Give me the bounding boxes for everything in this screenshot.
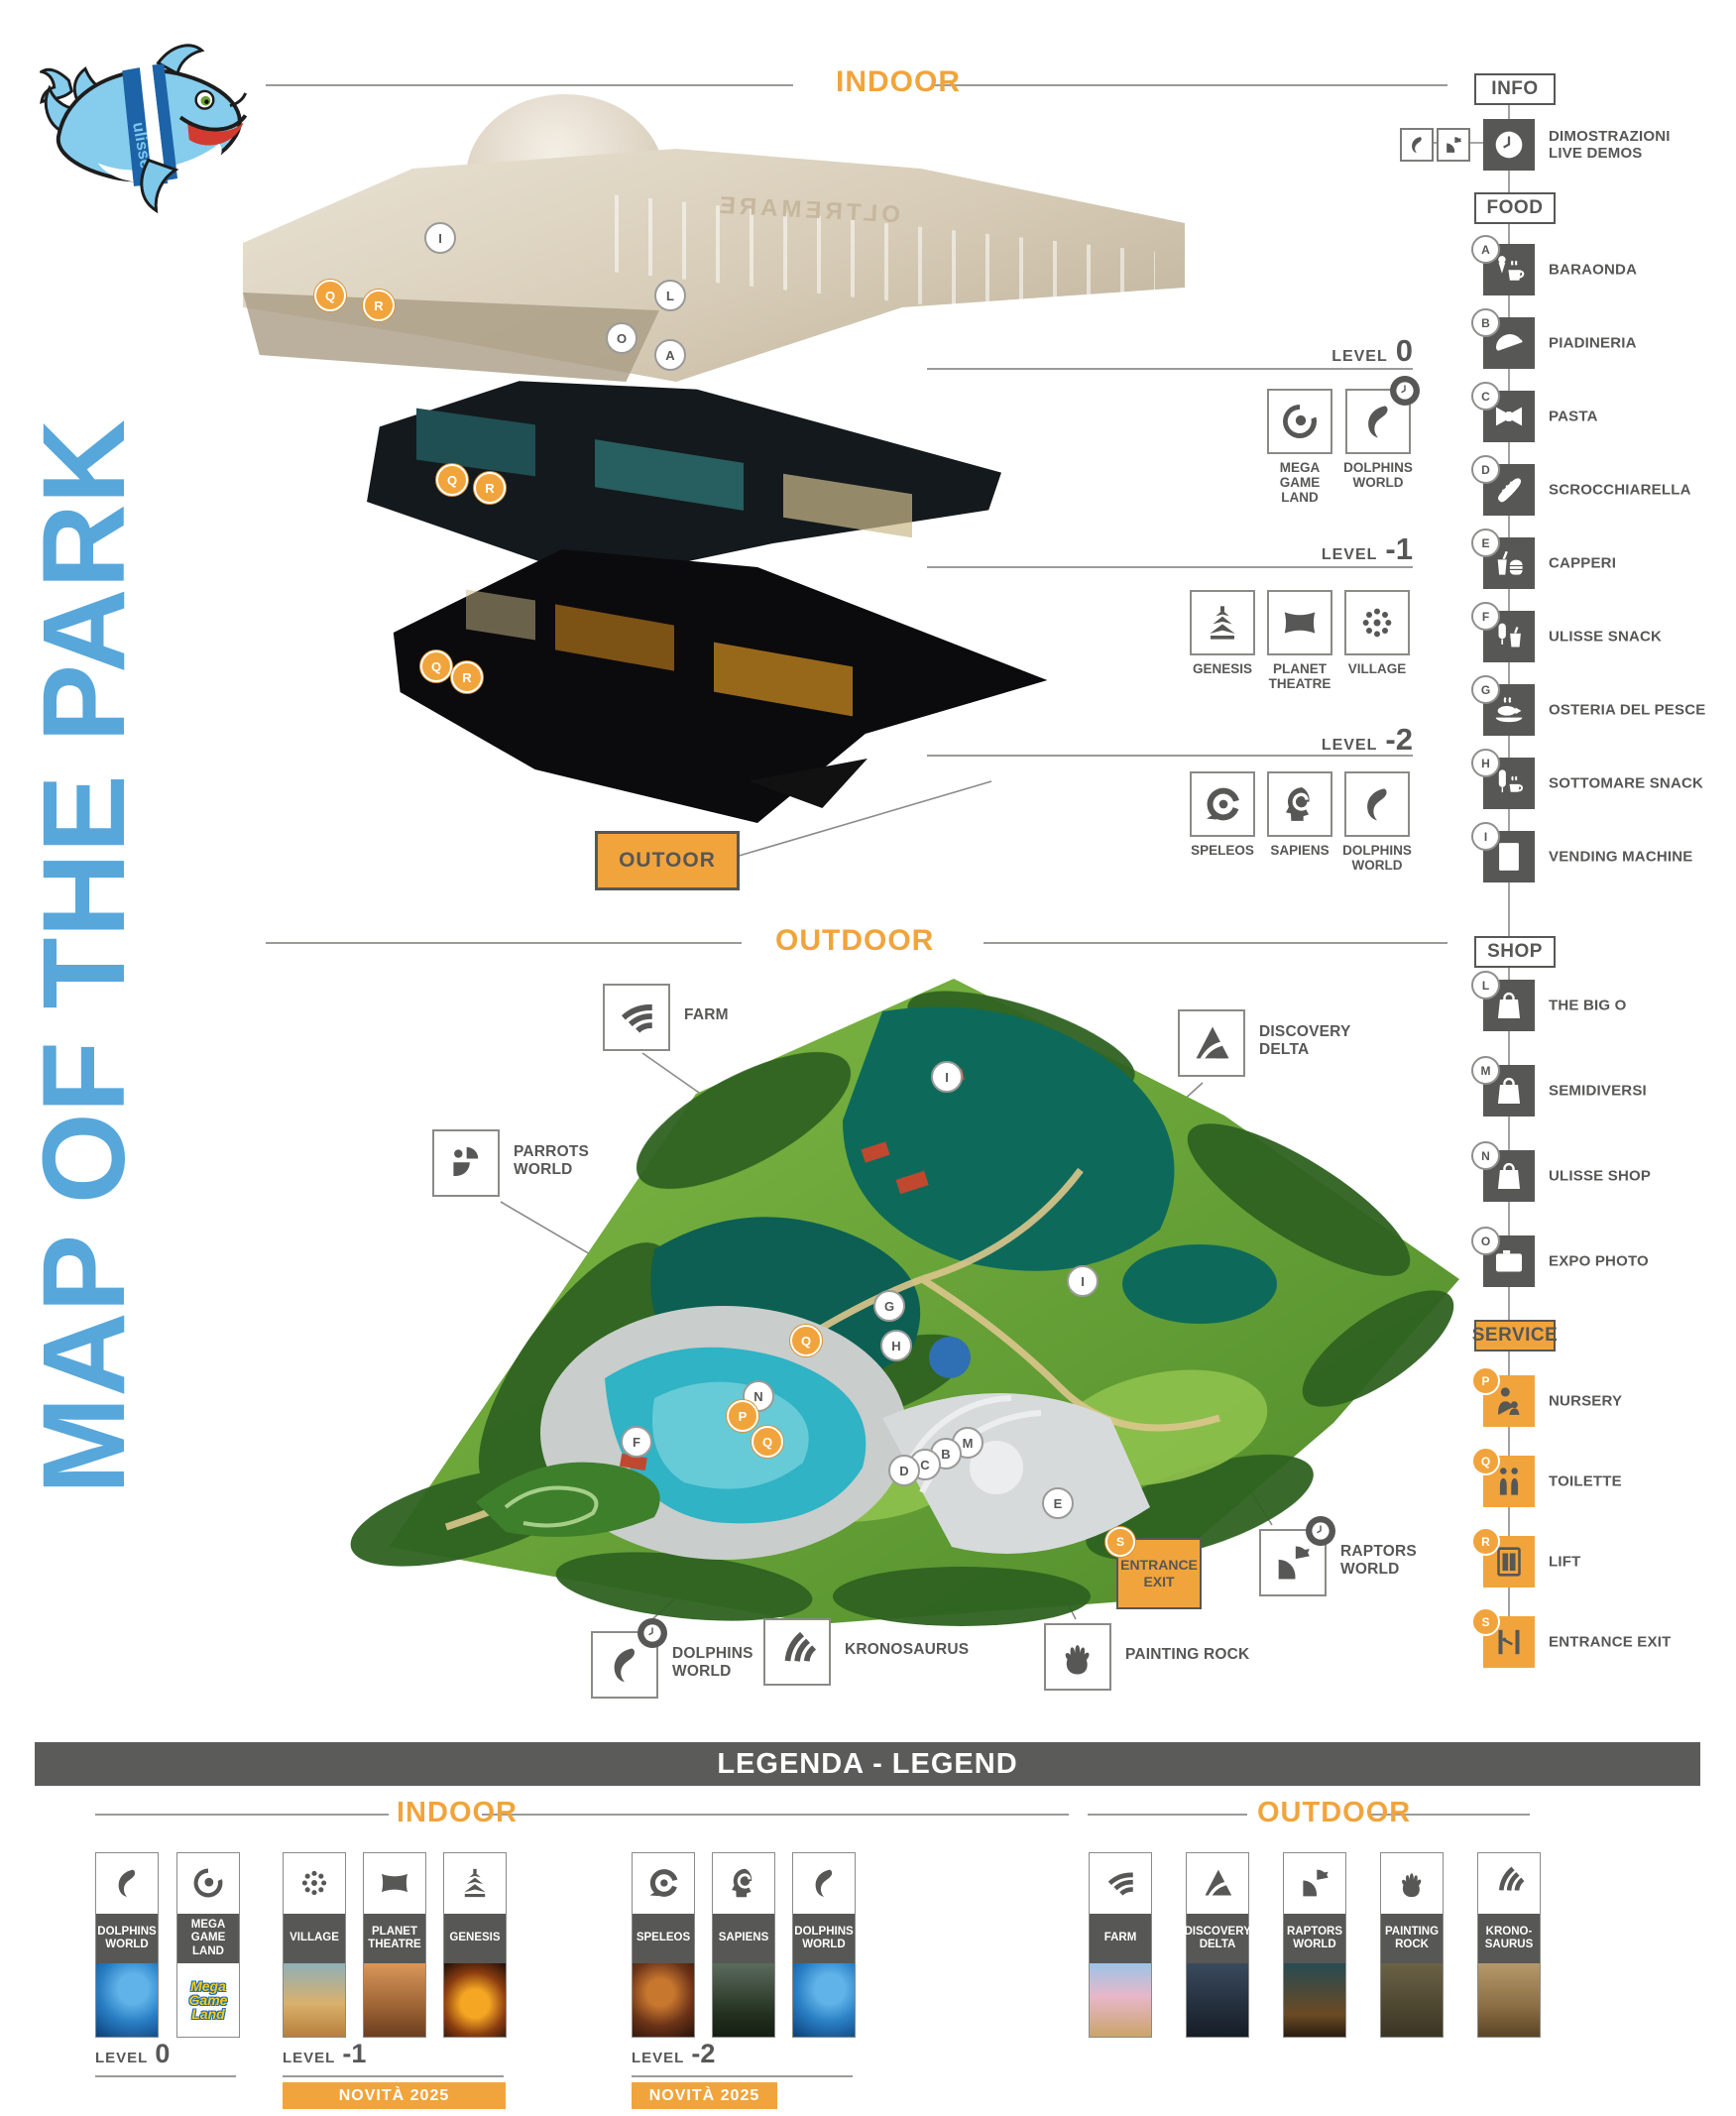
legend-card: SAPIENS — [712, 1852, 775, 2038]
legend-level-2-label: LEVEL-2 — [632, 2039, 715, 2069]
map-marker: I — [931, 1061, 963, 1093]
legend-card-photo — [1090, 1963, 1151, 2037]
level-1-label: LEVEL-1 — [1150, 531, 1413, 567]
venue-icon — [1344, 590, 1410, 655]
legend-cards-level-2: SPELEOS SAPIENS DOLPHINS WORLD — [632, 1852, 856, 2038]
food-item: I VENDING MACHINE — [1483, 831, 1535, 882]
venue-label: SAPIENS — [1260, 843, 1339, 858]
food-list: A BARAONDA B PIADINERIA C PASTA D SCROCC… — [1483, 244, 1535, 882]
attraction-icon — [432, 1129, 500, 1197]
service-label: NURSERY — [1549, 1392, 1727, 1409]
legend-card: GENESIS — [443, 1852, 507, 2038]
legend-card: MEGA GAME LAND MegaGameLand — [176, 1852, 240, 2038]
venue-icon — [1267, 771, 1332, 837]
attraction-label: KRONOSAURUS — [845, 1641, 974, 1659]
legend-card-icon — [177, 1853, 239, 1914]
letter-badge: E — [1471, 529, 1500, 557]
shop-label: EXPO PHOTO — [1549, 1252, 1727, 1269]
map-marker: I — [424, 222, 456, 254]
food-item: G OSTERIA DEL PESCE — [1483, 684, 1535, 736]
venue-tile: DOLPHINS WORLD — [1344, 771, 1410, 873]
venue-label: SPELEOS — [1183, 843, 1262, 858]
letter-badge: S — [1105, 1527, 1135, 1557]
food-item: E CAPPERI — [1483, 537, 1535, 589]
food-label: SOTTOMARE SNACK — [1549, 774, 1727, 791]
legend-card-photo — [793, 1963, 855, 2037]
venue-label: VILLAGE — [1337, 661, 1417, 676]
venue-icon — [1267, 590, 1332, 655]
novita-2025-badge: NOVITÀ 2025 — [632, 2082, 777, 2109]
legend-card: FARM — [1089, 1852, 1152, 2038]
map-marker: Q — [314, 280, 346, 311]
legend-card-photo — [444, 1963, 506, 2037]
level-2-label: LEVEL-2 — [1150, 722, 1413, 758]
letter-badge: A — [1471, 235, 1500, 264]
legend-card: PLANET THEATRE — [363, 1852, 426, 2038]
map-marker: P — [727, 1400, 758, 1432]
venue-icon — [1190, 590, 1255, 655]
clock-icon — [1483, 119, 1535, 171]
map-marker: Q — [790, 1325, 822, 1356]
legend-card: DOLPHINS WORLD — [95, 1852, 159, 2038]
letter-badge: C — [1471, 382, 1500, 411]
legend-indoor-header: INDOOR — [397, 1797, 518, 1829]
legend-card-photo — [1187, 1963, 1248, 2037]
venue-tile: DOLPHINS WORLD — [1345, 389, 1411, 505]
venue-tile: SPELEOS — [1190, 771, 1255, 873]
map-marker: F — [621, 1426, 652, 1458]
park-map-poster: ulisse MAP OF THE PARK INDOOR OLTREMARE … — [0, 0, 1736, 2116]
legend-card: SPELEOS — [632, 1852, 695, 2038]
legend-card: DISCOVERY DELTA — [1186, 1852, 1249, 2038]
letter-badge: I — [1471, 822, 1500, 851]
legend-card-label: FARM — [1090, 1914, 1151, 1963]
legend-card-icon — [793, 1853, 855, 1914]
attraction-icon — [1178, 1009, 1245, 1077]
food-item: A BARAONDA — [1483, 244, 1535, 295]
legend-card: KRONO- SAURUS — [1477, 1852, 1541, 2038]
legend-card-photo — [284, 1963, 345, 2037]
legend-card: RAPTORS WORLD — [1283, 1852, 1346, 2038]
food-item: H SOTTOMARE SNACK — [1483, 758, 1535, 809]
legend-card-icon — [1090, 1853, 1151, 1914]
attraction-callout: KRONOSAURUS — [763, 1618, 831, 1686]
map-marker: A — [654, 339, 686, 371]
letter-badge: N — [1471, 1141, 1500, 1170]
letter-badge: B — [1471, 308, 1500, 337]
venue-label: DOLPHINS WORLD — [1337, 843, 1417, 873]
indoor-section-header: INDOOR — [836, 65, 961, 99]
legend-title-bar: LEGENDA - LEGEND — [35, 1742, 1700, 1786]
legend-card-label: KRONO- SAURUS — [1478, 1914, 1540, 1963]
venue-label: DOLPHINS WORLD — [1338, 460, 1418, 490]
service-label: ENTRANCE EXIT — [1549, 1633, 1727, 1650]
attraction-icon — [1044, 1623, 1111, 1691]
clock-icon — [637, 1618, 667, 1648]
attraction-icon — [603, 984, 670, 1051]
map-marker: R — [451, 661, 483, 693]
legend-card-photo — [96, 1963, 158, 2037]
legend-card-icon — [1284, 1853, 1345, 1914]
map-marker: Q — [752, 1426, 783, 1458]
venue-icon — [1267, 389, 1332, 454]
legend-card-photo — [713, 1963, 774, 2037]
venue-tile: PLANET THEATRE — [1267, 590, 1332, 691]
letter-badge: S — [1471, 1607, 1500, 1636]
letter-badge: M — [1471, 1056, 1500, 1085]
food-header: FOOD — [1474, 192, 1556, 224]
legend-level-1-label: LEVEL-1 — [283, 2039, 366, 2069]
venue-icon — [1344, 771, 1410, 837]
legend-card-label: GENESIS — [444, 1914, 506, 1963]
legend-card-icon — [1187, 1853, 1248, 1914]
food-item: D SCROCCHIARELLA — [1483, 464, 1535, 516]
legend-card-icon — [364, 1853, 425, 1914]
map-marker: G — [873, 1290, 905, 1322]
level-0-venues: MEGA GAME LAND DOLPHINS WORLD — [1267, 389, 1411, 505]
legend-card-label: DISCOVERY DELTA — [1187, 1914, 1248, 1963]
food-item: F ULISSE SNACK — [1483, 611, 1535, 662]
legend-card-icon — [1478, 1853, 1540, 1914]
legend-card-icon — [633, 1853, 694, 1914]
attraction-label: FARM — [684, 1006, 813, 1024]
venue-icon — [1190, 771, 1255, 837]
map-marker: Q — [420, 650, 452, 682]
legend-cards-level-1: VILLAGE PLANET THEATRE GENESIS — [283, 1852, 507, 2038]
legend-card-label: MEGA GAME LAND — [177, 1914, 239, 1963]
attraction-callout: PAINTING ROCK — [1044, 1623, 1111, 1691]
food-label: VENDING MACHINE — [1549, 848, 1727, 865]
letter-badge: R — [1471, 1527, 1500, 1556]
attraction-label: PAINTING ROCK — [1125, 1646, 1254, 1664]
legend-level-0-label: LEVEL0 — [95, 2039, 170, 2069]
attraction-label: RAPTORS WORLD — [1340, 1543, 1469, 1579]
legend-card: DOLPHINS WORLD — [792, 1852, 856, 2038]
food-label: BARAONDA — [1549, 261, 1727, 278]
legend-card-label: RAPTORS WORLD — [1284, 1914, 1345, 1963]
food-label: OSTERIA DEL PESCE — [1549, 701, 1727, 718]
legend-card-photo — [364, 1963, 425, 2037]
clock-icon — [1306, 1516, 1335, 1546]
food-label: PASTA — [1549, 408, 1727, 424]
legend-card-icon — [284, 1853, 345, 1914]
outoor-button: OUTOOR — [595, 831, 740, 890]
attraction-callout: DOLPHINS WORLD — [591, 1631, 658, 1699]
attraction-callout: RAPTORS WORLD — [1259, 1529, 1327, 1596]
venue-tile: GENESIS — [1190, 590, 1255, 691]
legend-cards-level0: DOLPHINS WORLD MEGA GAME LAND MegaGameLa… — [95, 1852, 240, 2038]
legend-card-label: SPELEOS — [633, 1914, 694, 1963]
letter-badge: O — [1471, 1227, 1500, 1255]
shop-label: ULISSE SHOP — [1549, 1167, 1727, 1184]
letter-badge: L — [1471, 971, 1500, 999]
legend-card-icon — [96, 1853, 158, 1914]
letter-badge: G — [1471, 675, 1500, 704]
food-label: PIADINERIA — [1549, 334, 1727, 351]
letter-badge: F — [1471, 602, 1500, 631]
novita-2025-badge: NOVITÀ 2025 — [283, 2082, 506, 2109]
map-marker: O — [606, 322, 637, 354]
dolphin-icon — [1400, 128, 1434, 162]
food-label: SCROCCHIARELLA — [1549, 481, 1727, 498]
legend-card-photo — [1381, 1963, 1443, 2037]
map-marker: L — [654, 280, 686, 311]
letter-badge: P — [1471, 1366, 1500, 1395]
live-demos-row: DIMOSTRAZIONILIVE DEMOS — [1483, 119, 1535, 171]
attraction-callout: PARROTS WORLD — [432, 1129, 500, 1197]
entrance-exit-badge: S ENTRANCE EXIT — [1116, 1538, 1202, 1609]
level-2-venues: SPELEOS SAPIENS DOLPHINS WORLD — [1190, 771, 1410, 873]
service-label: LIFT — [1549, 1553, 1727, 1570]
service-label: TOILETTE — [1549, 1472, 1727, 1489]
food-label: ULISSE SNACK — [1549, 628, 1727, 645]
legend-card-label: SAPIENS — [713, 1914, 774, 1963]
venue-label: GENESIS — [1183, 661, 1262, 676]
shop-label: THE BIG O — [1549, 997, 1727, 1013]
attraction-callout: FARM — [603, 984, 670, 1051]
legend-card: PAINTING ROCK — [1380, 1852, 1444, 2038]
shop-label: SEMIDIVERSI — [1549, 1082, 1727, 1099]
letter-badge: D — [1471, 455, 1500, 484]
legend-card-photo: MegaGameLand — [177, 1963, 239, 2037]
map-marker: R — [474, 472, 506, 504]
page-title-vertical: MAP OF THE PARK — [0, 223, 169, 1691]
level-1-venues: GENESIS PLANET THEATRE VILLAGE — [1190, 590, 1410, 691]
attraction-label: DISCOVERY DELTA — [1259, 1023, 1388, 1059]
legend-card-label: DOLPHINS WORLD — [96, 1914, 158, 1963]
map-marker: I — [1067, 1265, 1099, 1297]
venue-label: PLANET THEATRE — [1260, 661, 1339, 691]
map-marker: E — [1042, 1487, 1074, 1519]
live-demos-label: DIMOSTRAZIONILIVE DEMOS — [1549, 128, 1727, 163]
legend-card-label: PAINTING ROCK — [1381, 1914, 1443, 1963]
venue-tile: SAPIENS — [1267, 771, 1332, 873]
map-marker: H — [880, 1330, 912, 1361]
venue-tile: MEGA GAME LAND — [1267, 389, 1332, 505]
attraction-label: PARROTS WORLD — [514, 1143, 642, 1179]
legend-cards-outdoor: FARM DISCOVERY DELTA RAPTORS WORLD PAINT… — [1089, 1852, 1541, 2038]
legend-card-label: DOLPHINS WORLD — [793, 1914, 855, 1963]
legend-card-icon — [1381, 1853, 1443, 1914]
legend-card-label: PLANET THEATRE — [364, 1914, 425, 1963]
letter-badge: H — [1471, 749, 1500, 777]
attraction-icon — [763, 1618, 831, 1686]
map-marker: Q — [436, 464, 468, 496]
legend-card-icon — [713, 1853, 774, 1914]
venue-label: MEGA GAME LAND — [1260, 460, 1339, 505]
food-item: B PIADINERIA — [1483, 317, 1535, 369]
clock-icon — [1390, 376, 1420, 406]
legend-card: VILLAGE — [283, 1852, 346, 2038]
legend-outdoor-header: OUTDOOR — [1257, 1797, 1411, 1829]
legend-card-photo — [633, 1963, 694, 2037]
level-0-label: LEVEL0 — [1150, 333, 1413, 369]
raptor-icon — [1437, 128, 1470, 162]
legend-card-label: VILLAGE — [284, 1914, 345, 1963]
legend-card-icon — [444, 1853, 506, 1914]
map-marker: D — [888, 1455, 920, 1486]
attraction-callout: DISCOVERY DELTA — [1178, 1009, 1245, 1077]
ulisse-dolphin-mascot: ulisse — [40, 40, 273, 228]
letter-badge: Q — [1471, 1447, 1500, 1475]
food-item: C PASTA — [1483, 391, 1535, 442]
map-marker: R — [363, 290, 395, 321]
legend-card-photo — [1284, 1963, 1345, 2037]
info-header: INFO — [1474, 73, 1556, 105]
venue-tile: VILLAGE — [1344, 590, 1410, 691]
legend-card-photo — [1478, 1963, 1540, 2037]
food-label: CAPPERI — [1549, 554, 1727, 571]
